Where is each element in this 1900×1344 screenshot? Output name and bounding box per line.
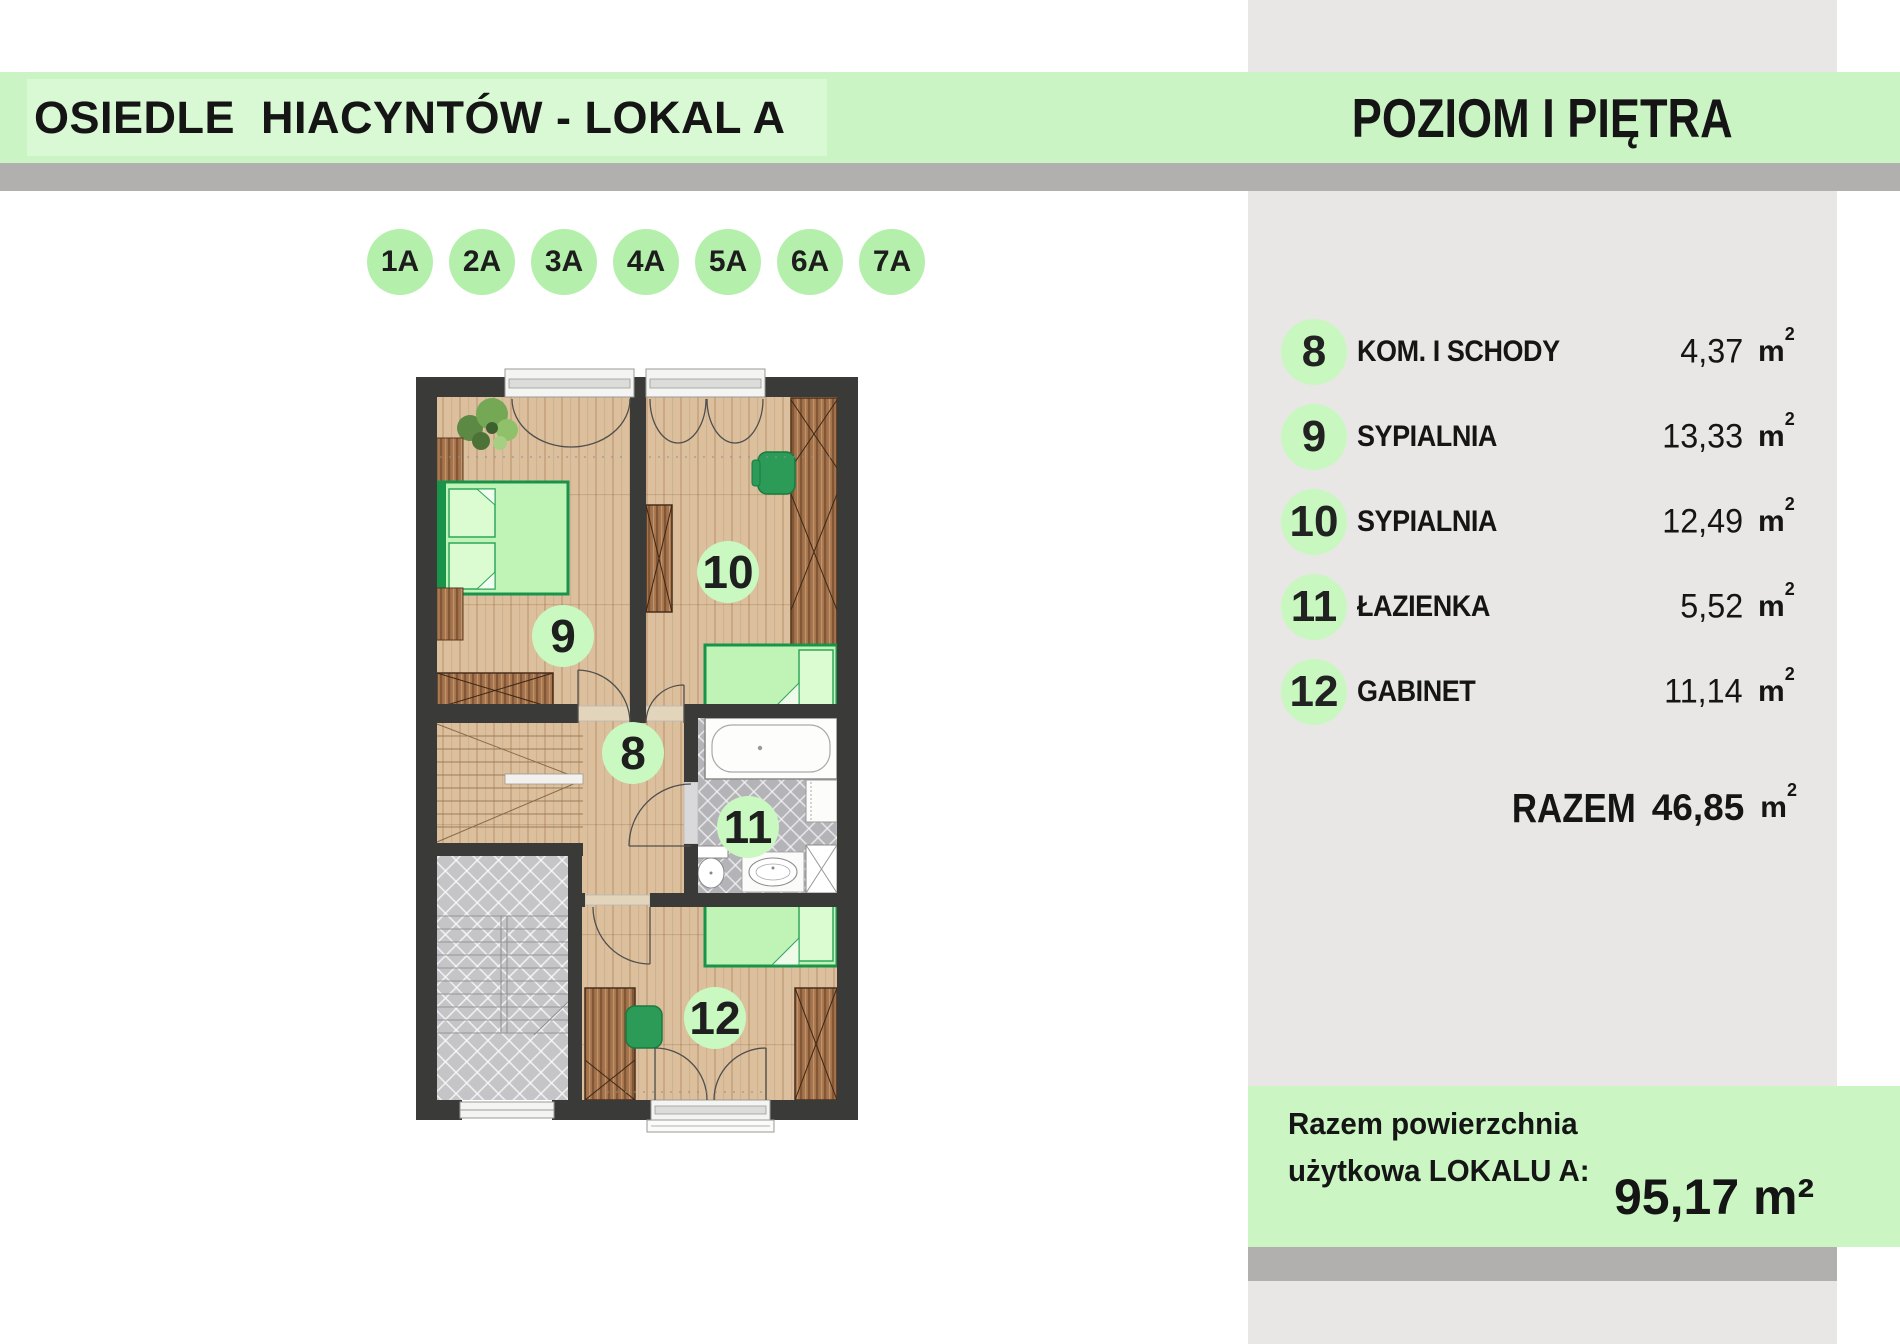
- room-number-badge: 12: [1281, 659, 1347, 725]
- unit-badge[interactable]: 7A: [859, 229, 925, 295]
- room-label: GABINET: [1357, 675, 1475, 709]
- room-area-unit: m2: [1758, 675, 1795, 709]
- room-list: 8 KOM. I SCHODY 4,37 m2 9 SYPIALNIA 13,3…: [1281, 319, 1800, 744]
- floor-plan: 8 9 10 11 12: [400, 355, 870, 1145]
- total-value: 46,85: [1652, 787, 1745, 829]
- room-row: 10 SYPIALNIA 12,49 m2: [1281, 489, 1800, 555]
- wardrobe-room10-left: [646, 505, 672, 612]
- unit-badge-label: 5A: [709, 245, 747, 279]
- unit-badge[interactable]: 3A: [531, 229, 597, 295]
- plan-number-10: 10: [702, 546, 753, 598]
- stairwell-floor: [437, 856, 568, 1100]
- bathtub: [705, 718, 837, 779]
- shelf-left-bottom: [437, 588, 463, 640]
- unit-sup: 2: [1785, 409, 1795, 429]
- unit-sup: 2: [1785, 494, 1795, 514]
- unit-sup: 2: [1785, 664, 1795, 684]
- sink: [742, 852, 804, 892]
- total-area-caption-line2: użytkowa LOKALU A:: [1288, 1147, 1590, 1194]
- unit-m: m: [1758, 505, 1785, 538]
- unit-m: m: [1758, 675, 1785, 708]
- room-row: 12 GABINET 11,14 m2: [1281, 659, 1800, 725]
- room-number-badge: 11: [1281, 574, 1347, 640]
- plan-number-12: 12: [689, 992, 740, 1044]
- unit-m: m: [1758, 420, 1785, 453]
- header-divider-bar: [0, 163, 1900, 191]
- room-area-value: 13,33: [1662, 418, 1743, 457]
- room-label: KOM. I SCHODY: [1357, 335, 1560, 369]
- unit-badge-label: 1A: [381, 245, 419, 279]
- total-area-caption: Razem powierzchnia użytkowa LOKALU A:: [1288, 1100, 1590, 1194]
- room-area-unit: m2: [1758, 505, 1795, 539]
- room-number-badge: 10: [1281, 489, 1347, 555]
- room-number-badge: 9: [1281, 404, 1347, 470]
- room-area-unit: m2: [1758, 420, 1795, 454]
- unit-badge-label: 2A: [463, 245, 501, 279]
- shelf-left-top: [437, 438, 463, 482]
- unit-sup: 2: [1785, 579, 1795, 599]
- chair-room12: [626, 1006, 662, 1048]
- room-row: 8 KOM. I SCHODY 4,37 m2: [1281, 319, 1800, 385]
- unit-badge-label: 6A: [791, 245, 829, 279]
- room-row: 11 ŁAZIENKA 5,52 m2: [1281, 574, 1800, 640]
- room-label: ŁAZIENKA: [1357, 590, 1490, 624]
- wardrobe-room9: [437, 673, 553, 708]
- total-area-value: 95,17 m²: [1614, 1168, 1814, 1226]
- total-row: RAZEM 46,85 m2: [1281, 775, 1797, 841]
- room-label: SYPIALNIA: [1357, 420, 1497, 454]
- unit-badge[interactable]: 5A: [695, 229, 761, 295]
- page: OSIEDLE HIACYNTÓW - LOKAL A POZIOM I PIĘ…: [0, 0, 1900, 1344]
- room-number-badge: 8: [1281, 319, 1347, 385]
- unit-badge[interactable]: 1A: [367, 229, 433, 295]
- room-area-value: 11,14: [1665, 673, 1743, 712]
- total-area-caption-line1: Razem powierzchnia: [1288, 1100, 1590, 1147]
- floor-title-text: POZIOM I PIĘTRA: [1352, 86, 1733, 150]
- bed-room12: [705, 900, 837, 966]
- room-area-value: 5,52: [1680, 588, 1743, 627]
- room-area-value: 12,49: [1662, 503, 1743, 542]
- unit-m: m: [1758, 590, 1785, 623]
- footer-divider-bar: [1248, 1247, 1837, 1281]
- wardrobe-room12: [795, 988, 837, 1100]
- unit-sup: 2: [1785, 324, 1795, 344]
- plan-number-9: 9: [550, 610, 576, 662]
- total-unit: m2: [1760, 791, 1797, 825]
- room-area-unit: m2: [1758, 335, 1795, 369]
- unit-badge[interactable]: 4A: [613, 229, 679, 295]
- double-bed: [437, 482, 568, 594]
- chair-room10: [752, 452, 795, 494]
- washer: [806, 845, 837, 893]
- total-label: RAZEM: [1512, 785, 1636, 832]
- unit-badge-label: 7A: [873, 245, 911, 279]
- page-title: OSIEDLE HIACYNTÓW - LOKAL A: [34, 72, 786, 163]
- header-band: OSIEDLE HIACYNTÓW - LOKAL A POZIOM I PIĘ…: [0, 72, 1900, 163]
- plan-number-11: 11: [724, 801, 773, 853]
- room-area-unit: m2: [1758, 590, 1795, 624]
- room-row: 9 SYPIALNIA 13,33 m2: [1281, 404, 1800, 470]
- unit-badge-label: 4A: [627, 245, 665, 279]
- unit-badge[interactable]: 2A: [449, 229, 515, 295]
- plan-number-8: 8: [620, 727, 646, 779]
- unit-m: m: [1760, 791, 1787, 824]
- desk-unit-room10: [791, 398, 837, 645]
- unit-badge-row: 1A 2A 3A 4A 5A 6A 7A: [367, 229, 925, 295]
- room-label: SYPIALNIA: [1357, 505, 1497, 539]
- total-area-box: Razem powierzchnia użytkowa LOKALU A: 95…: [1248, 1086, 1900, 1247]
- bath-cabinet: [806, 780, 837, 822]
- floor-title: POZIOM I PIĘTRA: [1248, 72, 1837, 163]
- bed-room10: [705, 645, 837, 711]
- room-area-value: 4,37: [1680, 333, 1743, 372]
- unit-sup: 2: [1787, 780, 1797, 800]
- unit-badge-label: 3A: [545, 245, 583, 279]
- unit-m: m: [1758, 335, 1785, 368]
- unit-badge[interactable]: 6A: [777, 229, 843, 295]
